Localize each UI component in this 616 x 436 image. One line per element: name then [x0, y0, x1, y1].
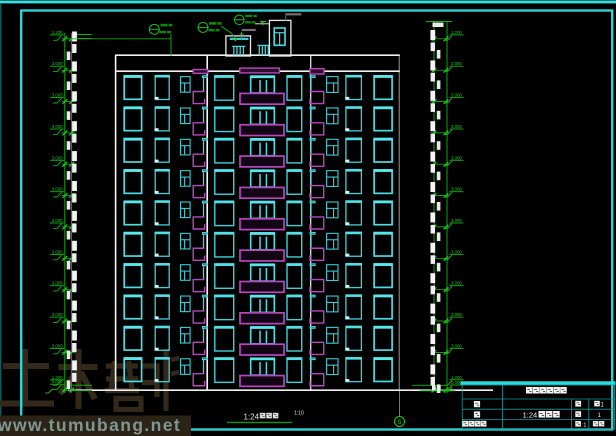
svg-text:1: 1 [601, 402, 605, 408]
svg-text:3.000: 3.000 [451, 343, 462, 348]
svg-text:3.000: 3.000 [451, 312, 462, 317]
svg-text:1.200: 1.200 [52, 30, 63, 35]
svg-text:www.tumubang.net: www.tumubang.net [0, 415, 181, 435]
svg-text:3.000: 3.000 [52, 124, 63, 129]
svg-text:3.000: 3.000 [52, 218, 63, 223]
svg-text:3.000: 3.000 [451, 61, 462, 66]
svg-text::1: :1 [582, 423, 587, 429]
svg-text:3.000: 3.000 [52, 281, 63, 286]
svg-text:3.000: 3.000 [52, 93, 63, 98]
svg-text:3.000: 3.000 [451, 218, 462, 223]
svg-text:3.000: 3.000 [451, 124, 462, 129]
svg-text:0.000: 0.000 [52, 379, 63, 384]
svg-text:3.000: 3.000 [451, 249, 462, 254]
svg-text:1:24: 1:24 [244, 412, 260, 421]
svg-text:3.000: 3.000 [52, 155, 63, 160]
svg-text:3.000: 3.000 [451, 281, 462, 286]
svg-text:1: 1 [598, 413, 602, 419]
svg-text:3.000: 3.000 [52, 249, 63, 254]
svg-text:1.200: 1.200 [451, 30, 462, 35]
svg-text:3.000: 3.000 [52, 61, 63, 66]
svg-text:5: 5 [398, 419, 402, 426]
svg-text:1:24: 1:24 [523, 411, 538, 420]
svg-text:3.000: 3.000 [451, 155, 462, 160]
svg-text:1:10: 1:10 [294, 411, 304, 417]
svg-text:3.000: 3.000 [52, 312, 63, 317]
svg-text:3.000: 3.000 [52, 187, 63, 192]
svg-text:3.000: 3.000 [52, 343, 63, 348]
svg-text:3.000: 3.000 [451, 187, 462, 192]
svg-text:3.000: 3.000 [451, 93, 462, 98]
